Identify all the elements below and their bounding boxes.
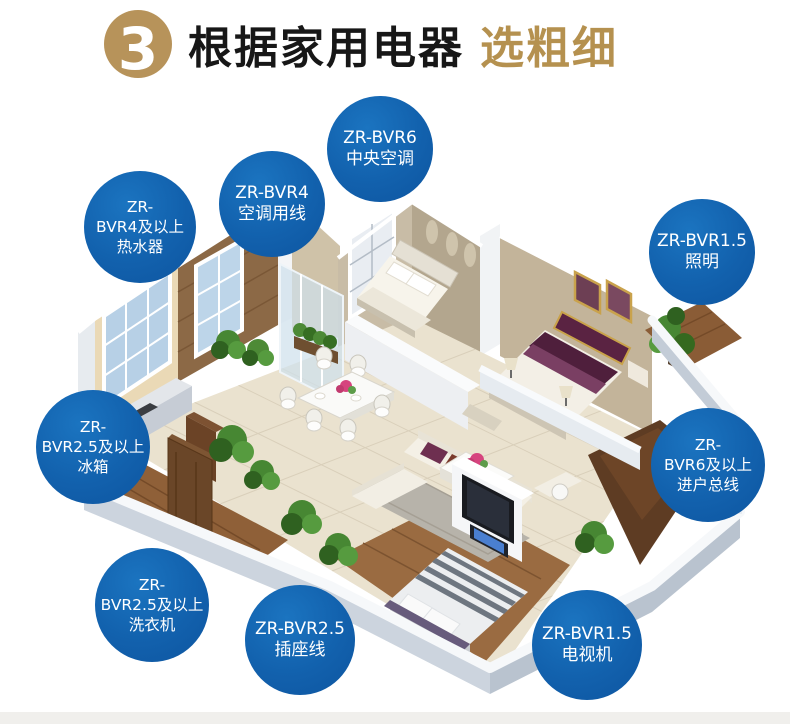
badge-central-air-conditioner-line-0: ZR-BVR6 <box>343 128 417 149</box>
badge-tv-set-line-1: 电视机 <box>562 645 613 666</box>
badge-lighting-line-1: 照明 <box>685 252 719 273</box>
product-infographic: 3 根据家用电器选粗细 ZR-BVR6中央空调ZR-BVR4空调用线ZR-BVR… <box>0 0 790 724</box>
header: 3 根据家用电器选粗细 <box>104 10 618 78</box>
badge-air-conditioner-wire: ZR-BVR4空调用线 <box>219 151 325 257</box>
badge-water-heater-line-0: ZR- <box>127 197 153 217</box>
badge-air-conditioner-wire-line-0: ZR-BVR4 <box>235 183 309 204</box>
title-main: 根据家用电器 <box>188 23 464 74</box>
badge-central-air-conditioner: ZR-BVR6中央空调 <box>327 96 433 202</box>
badge-water-heater: ZR-BVR4及以上热水器 <box>84 171 196 283</box>
badge-socket-wire: ZR-BVR2.5插座线 <box>245 585 355 695</box>
badge-water-heater-line-1: BVR4及以上 <box>96 217 184 237</box>
title-accent: 选粗细 <box>480 23 618 74</box>
badge-main-incoming-line-line-1: BVR6及以上 <box>664 455 752 475</box>
badge-washing-machine-line-2: 洗衣机 <box>129 615 176 635</box>
badge-fridge-line-2: 冰箱 <box>77 457 108 477</box>
badge-fridge-line-0: ZR- <box>80 417 106 437</box>
wire-label-badges: ZR-BVR6中央空调ZR-BVR4空调用线ZR-BVR4及以上热水器ZR-BV… <box>0 0 790 724</box>
badge-lighting: ZR-BVR1.5照明 <box>649 199 755 305</box>
badge-water-heater-line-2: 热水器 <box>117 237 164 257</box>
badge-lighting-line-0: ZR-BVR1.5 <box>657 231 747 252</box>
badge-fridge: ZR-BVR2.5及以上冰箱 <box>36 390 150 504</box>
page-title: 根据家用电器选粗细 <box>188 12 618 76</box>
badge-socket-wire-line-1: 插座线 <box>275 640 326 661</box>
badge-socket-wire-line-0: ZR-BVR2.5 <box>255 619 345 640</box>
badge-main-incoming-line: ZR-BVR6及以上进户总线 <box>651 408 765 522</box>
badge-central-air-conditioner-line-1: 中央空调 <box>346 149 414 170</box>
badge-air-conditioner-wire-line-1: 空调用线 <box>238 204 306 225</box>
badge-washing-machine-line-1: BVR2.5及以上 <box>101 595 204 615</box>
badge-main-incoming-line-line-0: ZR- <box>695 435 721 455</box>
badge-fridge-line-1: BVR2.5及以上 <box>42 437 145 457</box>
badge-washing-machine: ZR-BVR2.5及以上洗衣机 <box>95 548 209 662</box>
badge-tv-set: ZR-BVR1.5电视机 <box>532 590 642 700</box>
badge-washing-machine-line-0: ZR- <box>139 575 165 595</box>
badge-main-incoming-line-line-2: 进户总线 <box>677 475 739 495</box>
step-number-badge: 3 <box>104 10 172 78</box>
step-number: 3 <box>118 20 158 78</box>
badge-tv-set-line-0: ZR-BVR1.5 <box>542 624 632 645</box>
